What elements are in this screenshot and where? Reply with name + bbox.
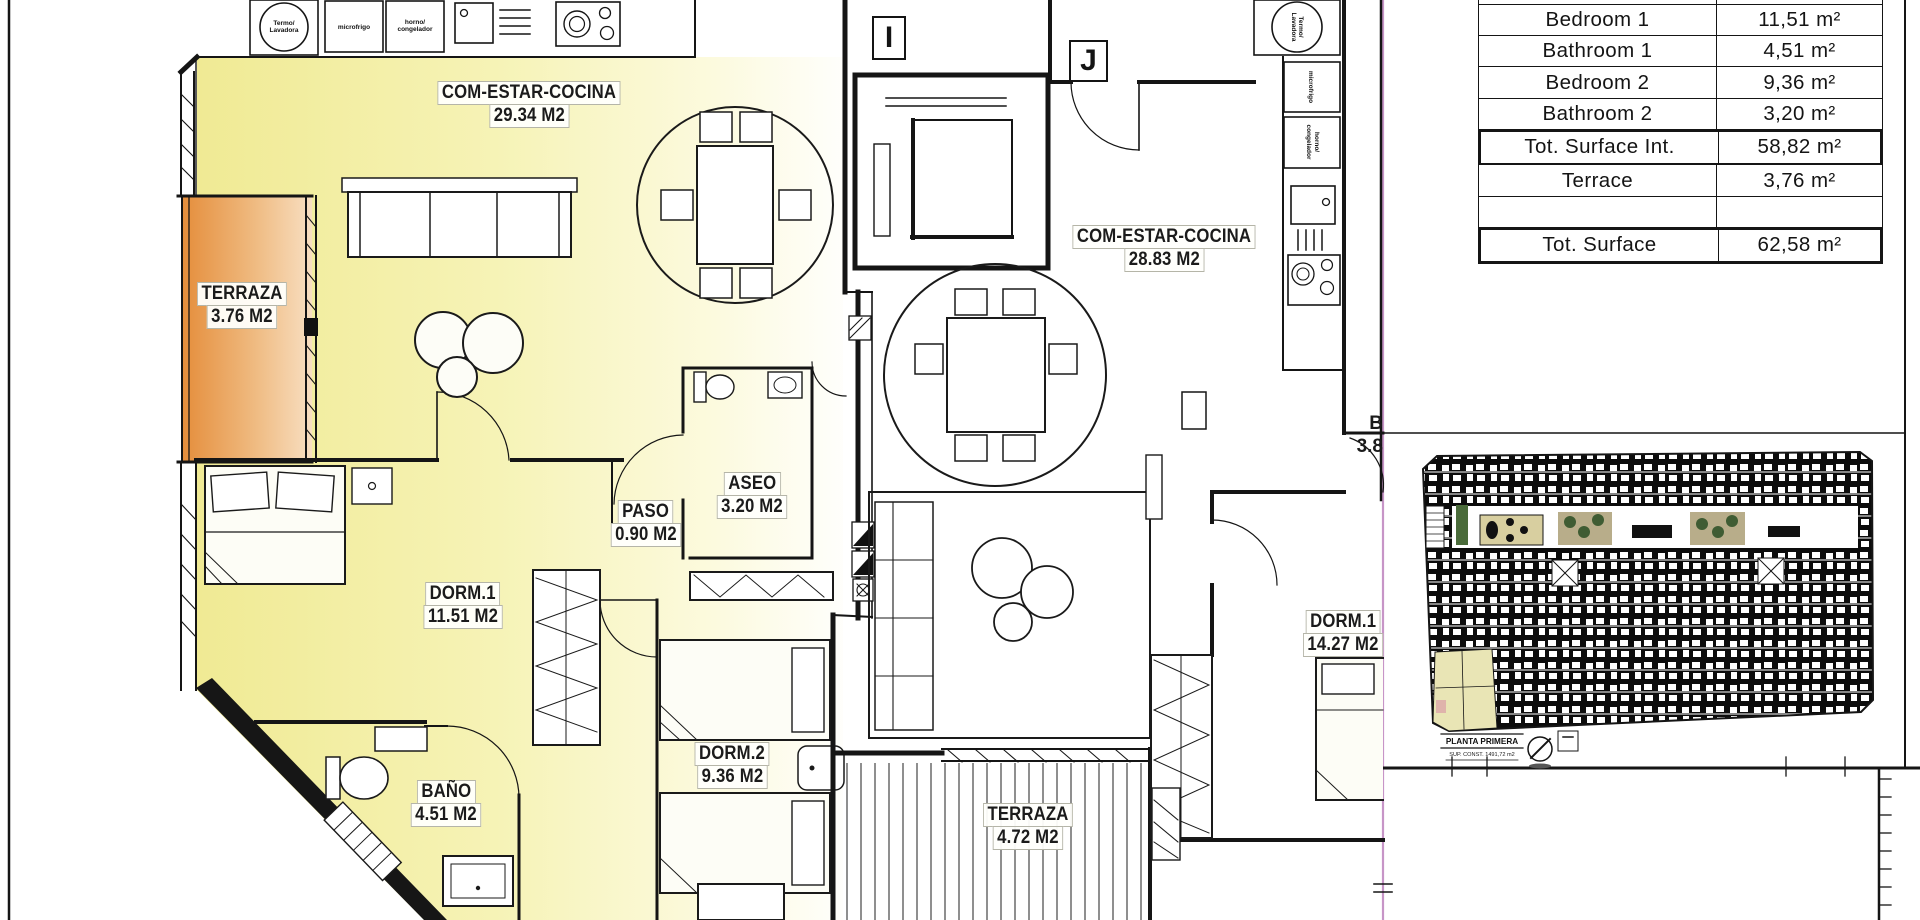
svg-text:congelador: congelador [1305,124,1312,160]
room-label-hall-i: PASO 0.90 M2 [606,501,686,547]
svg-text:congelador: congelador [397,26,433,33]
overview-plan: PLANTA PRIMERA SUP. CONST. 1491,72 m2 [1423,452,1873,769]
overview-title: PLANTA PRIMERA [1446,737,1518,746]
room-label-bedroom2-i: DORM.2 9.36 M2 [689,743,774,789]
surface-area-table: Bedroom 1 11,51 m² Bathroom 1 4,51 m² Be… [1478,0,1883,264]
terrace-i-floor [183,196,312,462]
horno-label: horno/ [1313,132,1320,152]
horno-label: horno/ [405,19,425,26]
table-row-empty [1478,196,1883,229]
termo-label: Termo/ [273,20,294,27]
room-label-bedroom1-j: DORM.1 14.27 M2 [1298,611,1389,657]
floorplan-sheet: Termo/ Lavadora microfrigo horno/ congel… [0,0,1920,920]
dimension-ticks [1374,757,1891,905]
overview-subtitle: SUP. CONST. 1491,72 m2 [1449,752,1515,758]
room-label-toilet-i: ASEO 3.20 M2 [712,473,792,519]
room-label-bath-j-clipped: B 3.8 [1340,412,1383,458]
table-row: Bathroom 1 4,51 m² [1478,35,1883,68]
room-label-living-i: COM-ESTAR-COCINA 29.34 M2 [425,82,633,128]
unit-label-j: J [1069,40,1108,82]
table-row-total-interior: Tot. Surface Int. 58,82 m² [1478,129,1883,166]
table-row-total: Tot. Surface 62,58 m² [1478,227,1883,264]
room-label-living-j: COM-ESTAR-COCINA 28.83 M2 [1060,226,1268,272]
unit-label-i: I [872,16,906,60]
sink-icon [375,727,427,751]
toilet-icon [326,757,340,799]
overview-highlighted-unit [1433,649,1497,731]
room-label-bedroom1-i: DORM.1 11.51 M2 [418,583,508,629]
room-label-terrace-i: TERRAZA 3.76 M2 [191,283,293,329]
sink-icon [455,3,493,43]
table-row: Bedroom 2 9,36 m² [1478,66,1883,99]
svg-text:Lavadora: Lavadora [270,27,299,34]
table-row: Terrace 3,76 m² [1478,164,1883,197]
table-row: Bedroom 1 11,51 m² [1478,4,1883,37]
kitchen-appliances-unit-i: Termo/ Lavadora microfrigo horno/ congel… [250,0,620,55]
micro-label: microfrigo [338,24,370,31]
furniture-unit-j [836,264,1383,920]
room-label-terrace-j: TERRAZA 4.72 M2 [977,804,1079,850]
micro-label: microfrigo [1307,71,1314,103]
elevator-car [912,120,1012,238]
svg-text:Lavadora: Lavadora [1290,13,1297,42]
kitchen-appliances-unit-j: Termo/ Lavadora microfrigo horno/ congel… [1254,0,1344,370]
termo-label: Termo/ [1297,16,1304,37]
room-label-bath-i: BAÑO 4.51 M2 [406,781,486,827]
table-row: Bathroom 2 3,20 m² [1478,98,1883,131]
duct-symbol-icons [849,316,874,601]
